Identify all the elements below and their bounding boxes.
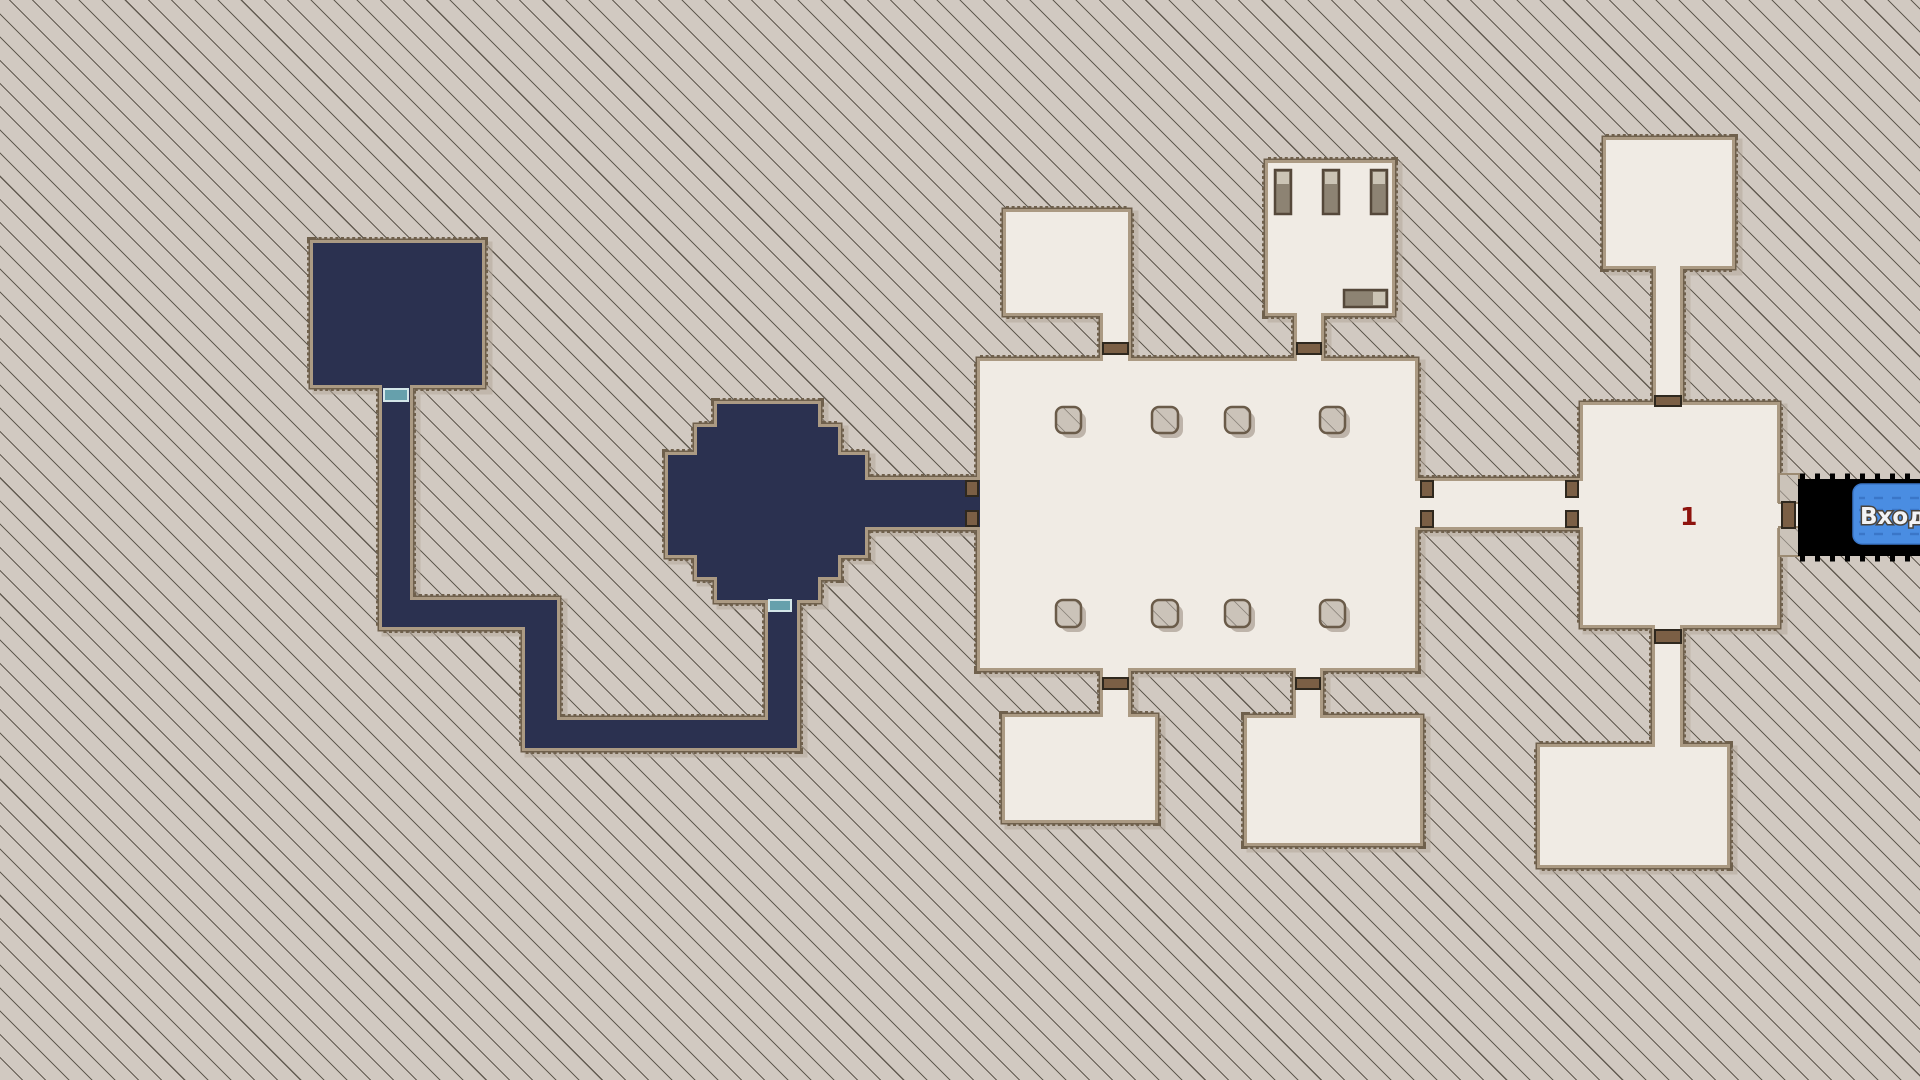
- dungeon-map: Вход 1: [0, 0, 1920, 1080]
- teal-door-dark-room[interactable]: [384, 389, 408, 401]
- entrance-area: Вход: [1779, 474, 1920, 558]
- door-bottom-right-room[interactable]: [1655, 630, 1681, 643]
- rooms-light[interactable]: [980, 140, 1802, 865]
- doorpost[interactable]: [1421, 481, 1433, 497]
- door-top-right-room[interactable]: [1655, 396, 1681, 406]
- pillar[interactable]: [1320, 407, 1345, 433]
- doorpost[interactable]: [1421, 511, 1433, 527]
- bed-pillow: [1325, 172, 1337, 184]
- door-bottom-middle-room[interactable]: [1296, 678, 1320, 689]
- bed-pillow: [1373, 292, 1385, 305]
- door-bottom-left-room[interactable]: [1103, 678, 1128, 689]
- entrance-label: Вход: [1860, 504, 1920, 530]
- doorpost[interactable]: [1566, 481, 1578, 497]
- pillar[interactable]: [1152, 600, 1178, 627]
- bed-pillow: [1373, 172, 1385, 184]
- pillar[interactable]: [1056, 600, 1081, 627]
- wall-block: [1779, 527, 1799, 556]
- doorpost[interactable]: [1782, 502, 1795, 528]
- pillar[interactable]: [1225, 407, 1250, 433]
- wall-block: [1779, 474, 1799, 503]
- map-canvas: Вход 1: [0, 0, 1920, 1080]
- doorpost[interactable]: [966, 511, 978, 526]
- pillar[interactable]: [1225, 600, 1250, 627]
- teal-door-octagon[interactable]: [769, 600, 791, 611]
- pillar[interactable]: [1056, 407, 1081, 433]
- bed-pillow: [1277, 172, 1289, 184]
- pillar[interactable]: [1152, 407, 1178, 433]
- pillar[interactable]: [1320, 600, 1345, 627]
- door-barracks[interactable]: [1297, 343, 1321, 354]
- room-number-label: 1: [1680, 502, 1697, 531]
- door-top-left-room[interactable]: [1103, 343, 1128, 354]
- doorpost[interactable]: [966, 481, 978, 496]
- doorpost[interactable]: [1566, 511, 1578, 527]
